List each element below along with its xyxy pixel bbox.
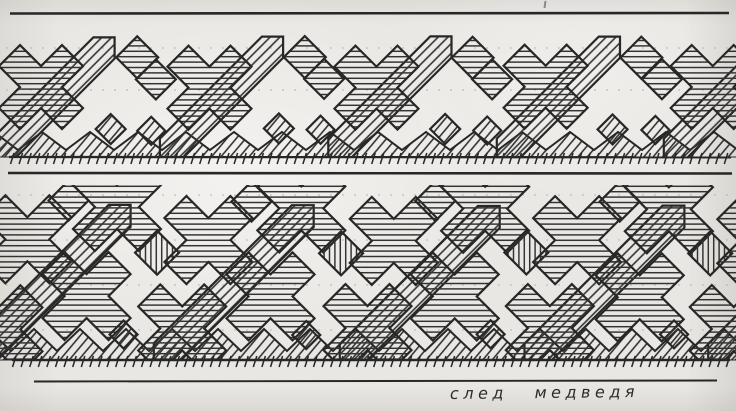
ornament-band-bottom bbox=[0, 163, 736, 373]
motif-unit bbox=[497, 37, 682, 160]
bear-track-cross bbox=[671, 45, 736, 129]
rule-line bbox=[10, 13, 729, 14]
caption-text: след медведя bbox=[450, 382, 639, 404]
ornament-scan-page: след медведя bbox=[0, 0, 736, 411]
ornament-band-top bbox=[0, 36, 736, 161]
ornament-drawing bbox=[0, 0, 736, 411]
rule-line bbox=[8, 173, 732, 174]
